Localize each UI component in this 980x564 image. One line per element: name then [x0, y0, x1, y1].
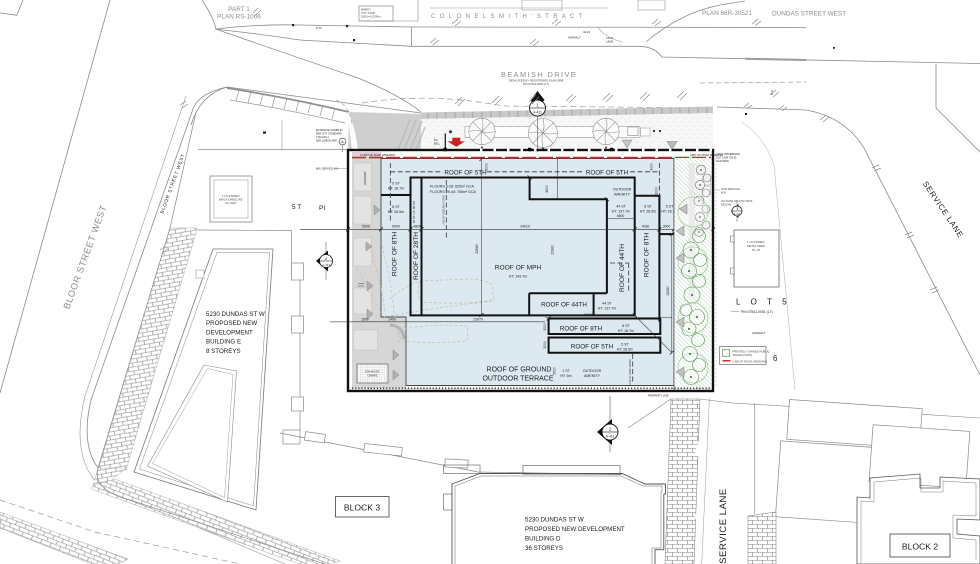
svg-text:ROOF OF 44TH: ROOF OF 44TH	[541, 302, 587, 309]
svg-text:FLOORS 9-28: 825m² GCA: FLOORS 9-28: 825m² GCA	[430, 185, 475, 189]
svg-text:ROOF OF 5TH: ROOF OF 5TH	[586, 170, 629, 177]
svg-text:44 ST: 44 ST	[602, 302, 612, 306]
svg-text:5000: 5000	[392, 225, 400, 229]
svg-text:No. 5027: No. 5027	[225, 201, 237, 205]
svg-text:BLOCK 2: BLOCK 2	[902, 542, 939, 552]
svg-text:8 ST: 8 ST	[392, 205, 400, 209]
svg-text:36 STOREYS: 36 STOREYS	[525, 545, 563, 552]
svg-text:DUNDAS STREET WEST: DUNDAS STREET WEST	[772, 11, 846, 18]
svg-text:HT: 28.5m: HT: 28.5m	[617, 348, 633, 352]
svg-text:22680: 22680	[475, 244, 479, 254]
svg-text:5500: 5500	[362, 225, 370, 229]
svg-text:PIN 07541-0063 (LT): PIN 07541-0063 (LT)	[523, 82, 549, 86]
svg-text:5 ST: 5 ST	[621, 343, 629, 347]
svg-text:BELOW: BELOW	[721, 203, 731, 207]
svg-text:ASPHALT: ASPHALT	[568, 36, 581, 40]
svg-text:ROOF OF 8TH: ROOF OF 8TH	[644, 233, 651, 278]
svg-text:44.22: 44.22	[583, 30, 590, 34]
svg-text:3000: 3000	[543, 341, 547, 349]
svg-text:5500: 5500	[553, 367, 557, 375]
svg-text:ROOF OF 44TH: ROOF OF 44TH	[619, 244, 626, 292]
svg-text:14060: 14060	[584, 313, 594, 317]
svg-text:SEE LANDSCAPE: SEE LANDSCAPE	[316, 140, 337, 143]
svg-text:PI: PI	[319, 205, 325, 212]
svg-text:MIN. SERVICE M.H.: MIN. SERVICE M.H.	[316, 168, 339, 171]
svg-text:PIN 07541-0051 (LT): PIN 07541-0051 (LT)	[741, 310, 773, 314]
svg-text:A-411: A-411	[734, 212, 741, 216]
svg-text:5230 DUNDAS ST W: 5230 DUNDAS ST W	[525, 517, 584, 524]
svg-text:6.73: 6.73	[316, 26, 322, 30]
svg-text:4 LIMIT OF ROAD WIDENING: 4 LIMIT OF ROAD WIDENING	[360, 153, 395, 157]
svg-text:GRATE: GRATE	[367, 374, 377, 378]
svg-text:LANE: LANE	[606, 40, 613, 44]
svg-text:PLAN 66R-30521: PLAN 66R-30521	[702, 10, 753, 17]
svg-text:OUTDOOR: OUTDOOR	[613, 188, 632, 192]
svg-text:PLAN RS-1066: PLAN RS-1066	[217, 14, 261, 21]
svg-text:ROOF OF 5TH: ROOF OF 5TH	[444, 170, 487, 177]
svg-text:AMENITY: AMENITY	[614, 193, 631, 197]
svg-text:1000: 1000	[361, 317, 369, 321]
svg-text:DRIVEWAY: DRIVEWAY	[363, 171, 367, 185]
svg-text:A-411: A-411	[606, 435, 615, 439]
svg-text:PART 1: PART 1	[228, 6, 250, 13]
svg-text:19280: 19280	[666, 286, 670, 296]
svg-text:3: 3	[736, 207, 738, 211]
svg-text:ROOF OF 28TH: ROOF OF 28TH	[413, 232, 420, 280]
svg-text:3000: 3000	[655, 187, 659, 195]
svg-text:LINE OF ROAD WIDENING: LINE OF ROAD WIDENING	[733, 359, 768, 363]
svg-text:8 ST: 8 ST	[644, 205, 652, 209]
svg-text:ROOF OF 8TH: ROOF OF 8TH	[392, 232, 399, 277]
svg-text:4030: 4030	[642, 225, 650, 229]
svg-text:HT: 5m: HT: 5m	[560, 374, 571, 378]
svg-text:PROPOSED NEW: PROPOSED NEW	[206, 320, 257, 327]
svg-text:DEVELOPMENT: DEVELOPMENT	[206, 329, 253, 336]
svg-text:1 ST: 1 ST	[562, 369, 570, 373]
svg-text:ASPHALT: ASPHALT	[752, 331, 766, 335]
svg-text:FLOORS 29-44: 785m² GCA: FLOORS 29-44: 785m² GCA	[430, 190, 477, 194]
svg-text:6 ST: 6 ST	[392, 182, 400, 186]
svg-text:4600: 4600	[617, 214, 625, 218]
svg-text:HT: 18.7m: HT: 18.7m	[618, 329, 634, 333]
svg-text:No. 15: No. 15	[752, 248, 761, 252]
svg-text:3600: 3600	[545, 185, 549, 193]
svg-text:BUILDING D: BUILDING D	[525, 536, 561, 543]
svg-text:8 ST: 8 ST	[622, 324, 630, 328]
svg-text:ELEV=133.80m: ELEV=133.80m	[361, 15, 381, 19]
svg-text:L O T 5: L O T 5	[736, 298, 791, 307]
svg-text:SPACE (POPS): SPACE (POPS)	[733, 353, 753, 357]
svg-text:ROOF OF MPH: ROOF OF MPH	[495, 265, 542, 272]
svg-text:28 ST HT: 88.5m: 28 ST HT: 88.5m	[412, 200, 416, 223]
svg-text:HT: 137.7m: HT: 137.7m	[598, 307, 616, 311]
svg-text:ROOF OF 5TH: ROOF OF 5TH	[571, 344, 614, 351]
svg-text:OUTDOOR: OUTDOOR	[583, 369, 602, 373]
svg-text:HT: 143.7m: HT: 143.7m	[509, 275, 527, 279]
svg-text:5 ST: 5 ST	[666, 205, 674, 209]
svg-text:3000: 3000	[650, 163, 654, 171]
svg-text:BELL: BELL	[434, 143, 441, 146]
svg-text:4800: 4800	[413, 225, 421, 229]
svg-text:A-417: A-417	[322, 263, 330, 267]
svg-text:5 T: 5 T	[292, 204, 301, 211]
svg-text:44 ST: 44 ST	[616, 205, 626, 209]
svg-text:SERVICE LANE: SERVICE LANE	[718, 488, 729, 564]
svg-text:34610: 34610	[520, 225, 530, 229]
svg-text:6: 6	[773, 354, 778, 363]
svg-text:ROOF OF GROUND: ROOF OF GROUND	[487, 367, 552, 374]
svg-text:22680: 22680	[551, 245, 555, 255]
svg-text:HT: 28.5m: HT: 28.5m	[388, 210, 404, 214]
svg-text:LINE OF GROUND FLOOR: LINE OF GROUND FLOOR	[443, 195, 446, 225]
svg-text:GAS MAIN: GAS MAIN	[716, 159, 729, 163]
svg-text:PROPOSED NEW DEVELOPMENT: PROPOSED NEW DEVELOPMENT	[525, 526, 625, 533]
svg-text:BUILDING E: BUILDING E	[206, 339, 241, 346]
svg-text:PROPERTY LINE: PROPERTY LINE	[648, 393, 669, 397]
svg-text:HT: 28.5m: HT: 28.5m	[640, 210, 656, 214]
svg-text:3000: 3000	[485, 163, 489, 171]
svg-text:AMENITY: AMENITY	[584, 374, 601, 378]
svg-text:8 STOREYS: 8 STOREYS	[206, 348, 241, 355]
svg-text:HT: 137.7m: HT: 137.7m	[612, 210, 630, 214]
svg-text:LINE OF ROOF ABOVE: LINE OF ROOF ABOVE	[629, 359, 632, 385]
svg-text:M.H.: M.H.	[721, 191, 727, 195]
svg-text:A-411: A-411	[533, 111, 542, 115]
svg-text:OUTDOOR TERRACE: OUTDOOR TERRACE	[482, 376, 553, 383]
svg-text:23070: 23070	[473, 317, 483, 321]
svg-text:1400: 1400	[388, 317, 396, 321]
svg-text:OUT CHIP ON SL: OUT CHIP ON SL	[716, 156, 737, 160]
svg-text:3000: 3000	[663, 225, 671, 229]
svg-text:5230 DUNDAS ST W: 5230 DUNDAS ST W	[206, 311, 265, 318]
svg-text:3000: 3000	[543, 323, 547, 331]
svg-text:HT: 18.7m: HT: 18.7m	[388, 187, 404, 191]
svg-text:4 PVC WATERMAIN: 4 PVC WATERMAIN	[716, 152, 740, 156]
svg-text:ROOF OF 8TH: ROOF OF 8TH	[560, 326, 603, 333]
svg-text:C O L O N E L S M I T H ' S: C O L O N E L S M I T H ' S T R A C T	[431, 14, 584, 20]
svg-text:BLOCK 3: BLOCK 3	[344, 503, 381, 513]
